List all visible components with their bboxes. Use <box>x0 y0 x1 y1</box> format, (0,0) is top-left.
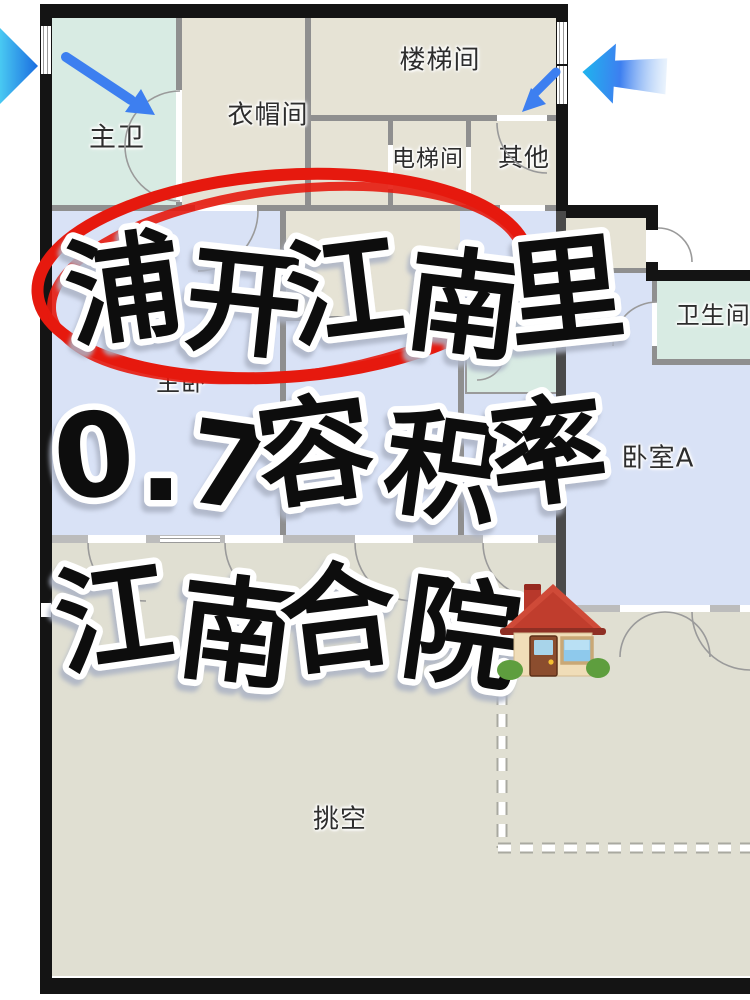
label-bedroom-partial: 卧 <box>344 402 368 436</box>
room-entry-hall <box>566 215 646 273</box>
blue-arrow-left-edge-icon <box>0 28 38 104</box>
door-gap-void-3 <box>355 535 413 543</box>
label-void: 挑空 <box>313 799 367 836</box>
door-gap-elevator-other <box>466 147 471 197</box>
blue-arrow-entry-icon <box>581 42 668 106</box>
wall-bedroom-a-west <box>556 211 566 612</box>
wall-left <box>40 4 52 990</box>
label-bedroom-a: 卧室A <box>622 438 695 475</box>
window-right-top <box>557 22 567 64</box>
door-gap-void-2 <box>225 535 283 543</box>
room-corridor <box>286 211 460 319</box>
room-master-bath <box>52 18 178 208</box>
label-bathroom-a: 卫生间A <box>676 296 750 331</box>
wall-entry-jamb-top <box>646 205 658 230</box>
wall-masterbed-divider <box>280 211 286 535</box>
wall-bottom <box>40 978 750 994</box>
door-gap-void-1 <box>88 535 146 543</box>
room-void <box>52 543 556 976</box>
door-gap-bedroom-a-1 <box>620 605 710 612</box>
label-cloakroom: 衣帽间 <box>227 95 308 132</box>
room-small-bath <box>465 300 560 394</box>
door-gap-other-bottom <box>500 205 545 211</box>
door-gap-void-4 <box>483 535 538 543</box>
wall-midband-top <box>52 205 556 211</box>
door-gap-cloak-bottom <box>195 205 257 211</box>
label-master-bath: 主卫 <box>89 116 145 155</box>
label-other: 其他 <box>498 138 550 174</box>
door-gap-other-top <box>497 115 547 121</box>
window-right-second <box>557 66 567 104</box>
door-gap-bathroom-a <box>652 302 657 346</box>
label-elevator: 电梯间 <box>392 139 464 173</box>
wall-middle-divider <box>458 273 464 535</box>
label-stairwell: 楼梯间 <box>399 40 480 77</box>
wall-step-horizontal <box>556 205 658 218</box>
door-gap-bedroom-a-2 <box>740 605 750 612</box>
door-gap-masterbath <box>176 90 182 202</box>
window-left-top <box>41 26 51 74</box>
opening-left-lower <box>41 603 51 617</box>
wall-bathroom-a-bottom <box>652 359 750 365</box>
label-master-bedroom: 主卧 <box>156 363 206 398</box>
wall-entry-bottom <box>566 268 646 273</box>
floorplan-screenshot: 主卫 衣帽间 楼梯间 电梯间 其他 主卧 卧 卫生间A 卧室A 挑空 <box>0 0 750 1000</box>
wall-bathroom-a-top <box>646 270 750 281</box>
wall-top <box>40 4 568 18</box>
window-midband-sill <box>160 536 220 543</box>
wall-corridor-bottom <box>286 316 464 321</box>
room-void-right <box>556 612 750 976</box>
